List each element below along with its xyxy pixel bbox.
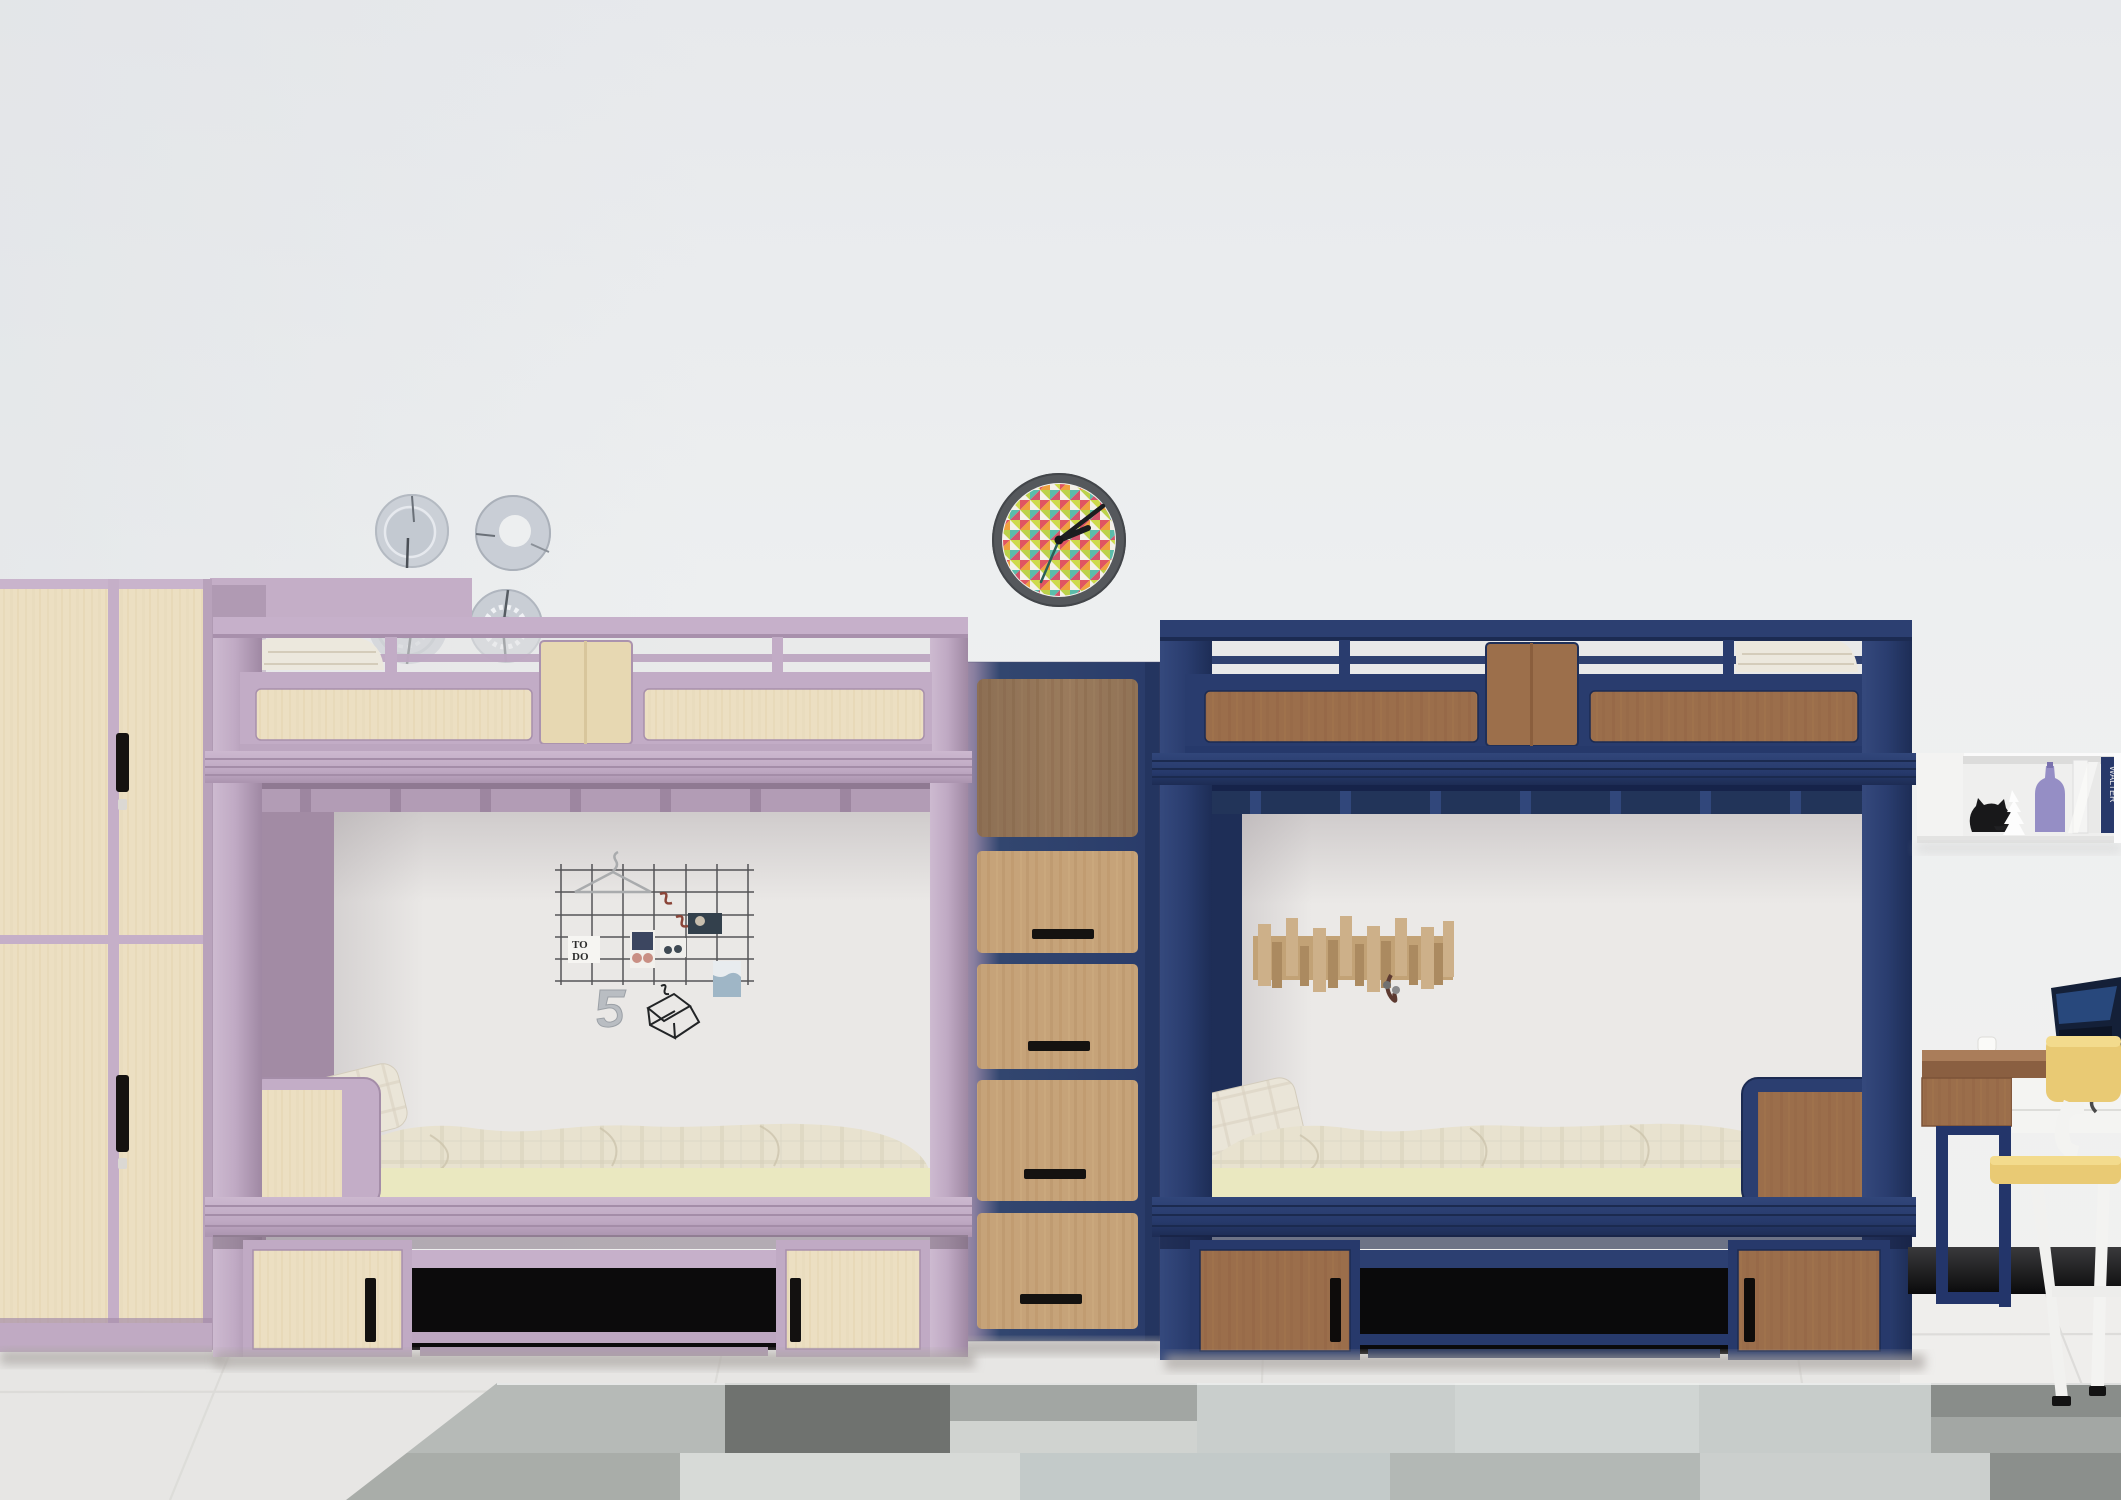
svg-text:DO: DO — [572, 951, 589, 963]
svg-text:TO: TO — [572, 939, 588, 951]
